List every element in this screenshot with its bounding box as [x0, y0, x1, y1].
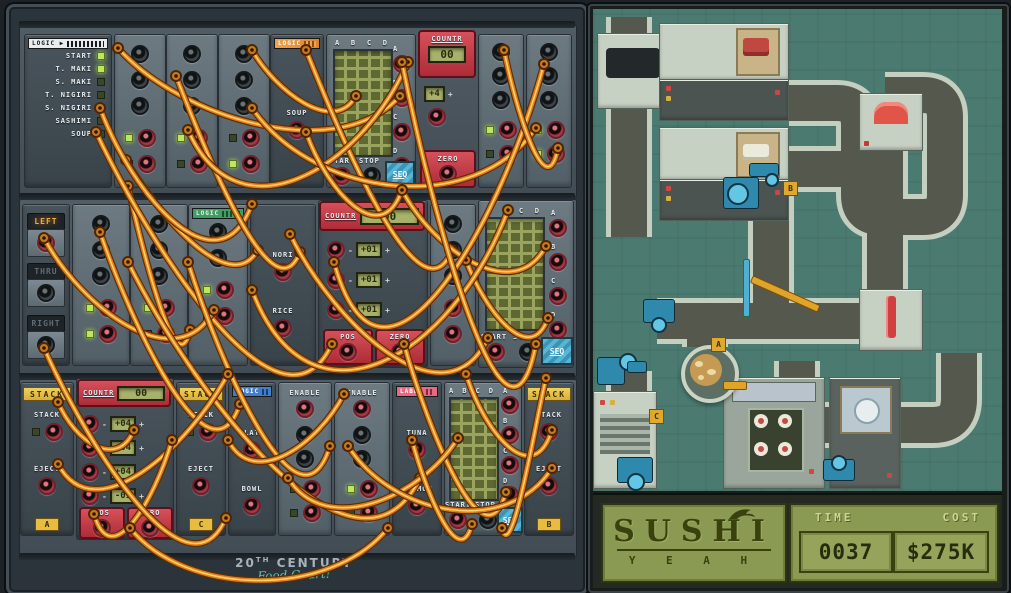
- thru-button[interactable]: THRU: [27, 263, 65, 280]
- plus-button[interactable]: +: [385, 246, 390, 255]
- audio-jack[interactable]: [235, 97, 253, 115]
- audio-jack[interactable]: [138, 155, 156, 173]
- meters-display: TIME COST 0037 $275K: [789, 503, 999, 583]
- audio-jack[interactable]: [150, 241, 168, 259]
- jack-led: [347, 509, 355, 517]
- counter-jack[interactable]: [327, 301, 345, 319]
- seq-logo: SEQ: [497, 507, 523, 533]
- jack-strip-module: [130, 204, 188, 366]
- seq-start-jack[interactable]: [487, 343, 505, 361]
- audio-jack[interactable]: [209, 223, 227, 241]
- audio-jack[interactable]: [492, 91, 510, 109]
- brand-strip-label: LOGIC: [196, 210, 219, 217]
- seq-grid-display[interactable]: [449, 397, 499, 501]
- stack-module-a: STACK STACK EJECT A: [20, 382, 74, 536]
- step-value-display: +04: [110, 416, 136, 432]
- enable-module: ENABLE: [334, 382, 390, 536]
- jack-strip-module: [72, 204, 130, 366]
- order-label: T. NIGIRI: [45, 91, 92, 99]
- audio-jack[interactable]: [499, 121, 517, 139]
- counter-step-row: +4 +: [424, 86, 453, 102]
- left-button[interactable]: LEFT: [27, 213, 65, 230]
- minus-button[interactable]: -: [102, 420, 107, 429]
- diverter-lever-blue[interactable]: [743, 259, 750, 317]
- left-jack[interactable]: [37, 234, 55, 252]
- counter-value-display: 00: [117, 386, 165, 401]
- plus-button[interactable]: +: [139, 420, 144, 429]
- audio-jack[interactable]: [540, 43, 558, 61]
- audio-jack[interactable]: [360, 504, 378, 522]
- seq-start-jack[interactable]: [449, 511, 467, 529]
- step-value-display: +04: [110, 440, 136, 456]
- plus-button[interactable]: +: [139, 468, 144, 477]
- jack-strip-module: [218, 34, 270, 188]
- plate-label: PLATE: [229, 429, 275, 437]
- audio-jack[interactable]: [99, 299, 117, 317]
- direction-module: LEFT THRU RIGHT: [22, 204, 70, 366]
- factory-panel: A B C SUSHI Y E A H TIME COST 0037 $275K: [588, 4, 1009, 593]
- jack-led: [290, 509, 298, 517]
- seq-column-headers: ABCD: [335, 39, 387, 47]
- jack-led: [86, 304, 94, 312]
- brand-footer: 20TH CENTURY Food Court!: [16, 556, 572, 582]
- seq-out-label: A: [393, 45, 398, 53]
- seq-out-label: C: [393, 113, 398, 121]
- seq-stop-jack[interactable]: [479, 511, 497, 529]
- right-jack[interactable]: [37, 336, 55, 354]
- jack-led: [486, 126, 494, 134]
- stack-jack[interactable]: [199, 423, 217, 441]
- counter-jack[interactable]: [81, 439, 99, 457]
- counter-title: COUNTR: [420, 35, 474, 43]
- robot-arm: [609, 453, 661, 491]
- audio-jack[interactable]: [157, 299, 175, 317]
- stack-label: STACK: [177, 411, 225, 419]
- audio-jack[interactable]: [444, 267, 462, 285]
- soup-pot-machine: [681, 345, 739, 403]
- step-value-display: +4: [424, 86, 445, 102]
- counter-module-top: COUNTR 00: [418, 30, 476, 78]
- sushi-piece: [754, 442, 768, 456]
- audio-jack[interactable]: [499, 145, 517, 163]
- seq-out-label: C: [551, 277, 556, 285]
- tuna-dispenser-machine: [659, 23, 789, 81]
- robot-arm: [819, 453, 859, 487]
- audio-jack[interactable]: [303, 480, 321, 498]
- audio-jack[interactable]: [353, 426, 371, 444]
- audio-jack[interactable]: [150, 215, 168, 233]
- stack-jack[interactable]: [540, 423, 558, 441]
- counter-module-mid: COUNTR 00 - +01 + - +01 + - +01 + POS ZE…: [318, 200, 428, 368]
- seq-column-headers: ABCD: [487, 207, 539, 215]
- counter-value-display: 00: [428, 46, 466, 63]
- jack-led: [534, 126, 542, 134]
- sequencer-module: ABCD A B C D START STOP SEQ: [326, 34, 416, 188]
- audio-jack[interactable]: [296, 450, 314, 468]
- jack-strip-module: [114, 34, 166, 188]
- stack-badge-b: B: [537, 518, 561, 531]
- audio-jack[interactable]: [190, 155, 208, 173]
- audio-jack[interactable]: [131, 45, 149, 63]
- audio-jack[interactable]: [296, 426, 314, 444]
- game-screen: LOGIC ▶ START T. MAKI S. MAKI T. NIGIRI …: [0, 0, 1011, 593]
- seq-start-jack[interactable]: [333, 167, 351, 185]
- audio-jack[interactable]: [138, 129, 156, 147]
- seq-out-label: D: [551, 311, 556, 319]
- time-label: TIME: [815, 511, 854, 524]
- counter-module-bottom: COUNTR 00 - +04 + - +04 + - +04 + - -01 …: [76, 378, 174, 540]
- jack-led: [177, 160, 185, 168]
- rice-jack[interactable]: [274, 319, 292, 337]
- stack-module-c: STACK STACK EJECT C: [176, 382, 226, 536]
- sushi-piece: [778, 442, 792, 456]
- step-value-display: +04: [110, 464, 136, 480]
- tuna-jack[interactable]: [408, 441, 426, 459]
- time-value: 0037: [799, 531, 893, 573]
- jack-led: [347, 485, 355, 493]
- audio-jack[interactable]: [92, 215, 110, 233]
- plus-button[interactable]: +: [139, 444, 144, 453]
- audio-jack[interactable]: [235, 71, 253, 89]
- seq-out-jack-a[interactable]: [549, 219, 567, 237]
- eject-label: EJECT: [177, 465, 225, 473]
- bowl-label: BOWL: [229, 485, 275, 493]
- step-value-display: +01: [356, 242, 382, 258]
- zero-jack[interactable]: [391, 343, 409, 361]
- seq-out-label: C: [503, 447, 508, 455]
- zero-jack[interactable]: [439, 165, 457, 183]
- minus-button[interactable]: -: [102, 492, 107, 501]
- seq-out-label: D: [393, 147, 398, 155]
- station-badge-a: A: [711, 337, 726, 352]
- audio-jack[interactable]: [444, 215, 462, 233]
- sequencer-module: ABCD A B C D START STOP SEQ: [444, 382, 522, 536]
- stack-header: STACK: [23, 387, 71, 401]
- enable-jack[interactable]: [353, 400, 371, 418]
- audio-jack[interactable]: [209, 249, 227, 267]
- right-button[interactable]: RIGHT: [27, 315, 65, 332]
- audio-jack[interactable]: [183, 45, 201, 63]
- audio-jack[interactable]: [353, 450, 371, 468]
- ingredient-module-fish: LABEL TUNA SALMON: [392, 382, 442, 536]
- counter-title: COUNTR: [325, 212, 356, 220]
- level-title: SUSHI: [603, 517, 785, 547]
- jack-led: [229, 134, 237, 142]
- sushi-piece: [754, 414, 768, 428]
- pos-button[interactable]: POS: [79, 507, 125, 539]
- nori-label: NORI: [251, 251, 315, 259]
- order-label-start: START: [66, 52, 92, 60]
- station-badge-c: C: [649, 409, 664, 424]
- seq-stop-label: STOP: [513, 333, 534, 341]
- minus-button[interactable]: -: [348, 246, 353, 255]
- soup-jack-label: SOUP: [271, 109, 323, 117]
- jack-led: [177, 134, 185, 142]
- eject-jack[interactable]: [192, 477, 210, 495]
- step-value-display: +01: [356, 302, 382, 318]
- bowl-jack[interactable]: [243, 497, 261, 515]
- status-panel: SUSHI Y E A H TIME COST 0037 $275K: [593, 493, 1002, 588]
- dispenser-module-plate-bowl: LOGIC PLATE BOWL: [228, 382, 276, 536]
- jack-led: [144, 330, 152, 338]
- level-subtitle: Y E A H: [617, 549, 771, 567]
- stack-led: [32, 428, 40, 436]
- audio-jack[interactable]: [444, 325, 462, 343]
- audio-jack[interactable]: [444, 241, 462, 259]
- jack-led: [86, 330, 94, 338]
- sushi-piece: [778, 414, 792, 428]
- audio-jack[interactable]: [92, 267, 110, 285]
- jack-strip-module: [166, 34, 218, 188]
- eject-label: EJECT: [525, 465, 573, 473]
- audio-jack[interactable]: [216, 281, 234, 299]
- audio-jack[interactable]: [99, 325, 117, 343]
- zero-button[interactable]: ZERO: [127, 507, 173, 539]
- counter-jack[interactable]: [81, 463, 99, 481]
- minus-button[interactable]: -: [348, 306, 353, 315]
- cost-label: COST: [943, 511, 982, 524]
- jack-led: [229, 160, 237, 168]
- counter-header: COUNTR 00: [77, 379, 171, 407]
- tuna-label: TUNA: [393, 429, 441, 437]
- robot-arm: [723, 159, 779, 215]
- audio-jack[interactable]: [92, 241, 110, 259]
- salmon-jack[interactable]: [408, 497, 426, 515]
- audio-jack[interactable]: [242, 129, 260, 147]
- seq-logo: SEQ: [385, 161, 415, 187]
- jack-led: [203, 312, 211, 320]
- enable-label: ENABLE: [335, 389, 389, 397]
- counter-value-display: 00: [360, 208, 419, 225]
- plate-jack[interactable]: [243, 441, 261, 459]
- pos-jack[interactable]: [339, 343, 357, 361]
- brand-strip-label: LABEL: [400, 388, 423, 395]
- seq-grid-display[interactable]: [485, 217, 545, 331]
- plus-button[interactable]: +: [448, 90, 453, 99]
- stack-header: STACK: [527, 387, 571, 401]
- cost-value: $275K: [893, 531, 989, 573]
- order-label: S. NIGIRI: [45, 104, 92, 112]
- audio-jack[interactable]: [547, 145, 565, 163]
- audio-jack[interactable]: [242, 155, 260, 173]
- stack-label: STACK: [21, 411, 73, 419]
- seq-out-jack-a[interactable]: [393, 55, 411, 73]
- audio-jack[interactable]: [183, 71, 201, 89]
- pos-jack[interactable]: [93, 519, 111, 537]
- eject-jack[interactable]: [38, 477, 56, 495]
- sushi-tray: [748, 408, 804, 472]
- audio-jack[interactable]: [216, 307, 234, 325]
- counter-jack[interactable]: [327, 241, 345, 259]
- seq-out-jack-c[interactable]: [393, 123, 411, 141]
- jack-strip-module: [478, 34, 524, 188]
- stack-jack[interactable]: [45, 423, 63, 441]
- robot-arm: [637, 295, 681, 335]
- seq-out-jack-b[interactable]: [393, 89, 411, 107]
- seq-stop-label: STOP: [359, 157, 380, 165]
- stack-badge-a: A: [35, 518, 59, 531]
- zero-jack[interactable]: [141, 519, 159, 537]
- minus-button[interactable]: -: [102, 468, 107, 477]
- zero-button[interactable]: ZERO: [375, 329, 425, 365]
- jack-led: [486, 150, 494, 158]
- jack-led: [534, 150, 542, 158]
- audio-jack[interactable]: [157, 325, 175, 343]
- jack-strip-module: [430, 204, 476, 366]
- stack-badge-c: C: [189, 518, 213, 531]
- stack-label: STACK: [525, 411, 573, 419]
- order-led: [97, 104, 105, 112]
- dolphin-icon: [727, 507, 757, 521]
- seq-out-label: D: [503, 477, 508, 485]
- jack-led: [125, 134, 133, 142]
- minus-button[interactable]: -: [348, 276, 353, 285]
- seq-out-label: A: [503, 387, 508, 395]
- jack-strip-module: [526, 34, 572, 188]
- machine-control-face: [659, 79, 789, 121]
- thru-jack[interactable]: [37, 284, 55, 302]
- jack-led: [203, 286, 211, 294]
- seq-out-jack-c[interactable]: [549, 287, 567, 305]
- seq-out-label: B: [393, 79, 398, 87]
- ingredient-module-nori-rice: NORI RICE: [250, 204, 316, 366]
- order-label: SASHIMI: [55, 117, 92, 125]
- seq-grid-display[interactable]: [333, 49, 393, 157]
- rice-label: RICE: [251, 307, 315, 315]
- eject-jack[interactable]: [540, 477, 558, 495]
- audio-jack[interactable]: [183, 97, 201, 115]
- stack-led: [186, 428, 194, 436]
- plus-button[interactable]: +: [139, 492, 144, 501]
- seq-out-jack-b[interactable]: [501, 426, 519, 444]
- order-led: [97, 130, 105, 138]
- audio-jack[interactable]: [131, 97, 149, 115]
- seq-stop-label: STOP: [475, 501, 496, 509]
- nori-jack[interactable]: [274, 263, 292, 281]
- seq-column-headers: ABCD: [449, 387, 493, 395]
- audio-jack[interactable]: [303, 504, 321, 522]
- counter-jack[interactable]: [81, 487, 99, 505]
- order-label: S. MAKI: [55, 78, 92, 86]
- counter-jack[interactable]: [428, 108, 446, 126]
- minus-button[interactable]: -: [102, 444, 107, 453]
- audio-jack[interactable]: [444, 299, 462, 317]
- robot-arm: [595, 345, 647, 389]
- seq-logo: SEQ: [541, 337, 573, 365]
- audio-jack[interactable]: [540, 91, 558, 109]
- plus-button[interactable]: +: [385, 306, 390, 315]
- order-led: [97, 65, 105, 73]
- audio-jack[interactable]: [547, 121, 565, 139]
- audio-jack[interactable]: [492, 67, 510, 85]
- seq-out-jack-c[interactable]: [501, 456, 519, 474]
- jack-led: [290, 485, 298, 493]
- seq-stop-jack[interactable]: [519, 343, 537, 361]
- seq-out-jack-a[interactable]: [501, 396, 519, 414]
- jack-strip-module: LOGIC: [188, 204, 248, 366]
- factory-floor: A B C: [593, 9, 1002, 491]
- enable-jack[interactable]: [296, 400, 314, 418]
- seq-stop-jack[interactable]: [363, 167, 381, 185]
- audio-jack[interactable]: [492, 43, 510, 61]
- seq-start-label: START: [481, 333, 507, 341]
- stack-module-b: STACK STACK EJECT B: [524, 382, 574, 536]
- enable-label: ENABLE: [279, 389, 331, 397]
- jack-led: [144, 304, 152, 312]
- soup-jack[interactable]: [288, 121, 306, 139]
- audio-jack[interactable]: [360, 480, 378, 498]
- soup-output-module: LOGIC SOUP: [270, 34, 324, 188]
- level-title-display: SUSHI Y E A H: [601, 503, 787, 583]
- enable-module: ENABLE: [278, 382, 332, 536]
- salmon-label: SALMON: [393, 485, 441, 493]
- audio-jack[interactable]: [190, 129, 208, 147]
- plus-button[interactable]: +: [385, 276, 390, 285]
- fish-slicer-machine: [859, 289, 923, 351]
- soup-pot-pipe: [723, 381, 747, 390]
- stack-header: STACK: [179, 387, 223, 401]
- order-led: [97, 52, 105, 60]
- seq-start-label: START: [445, 501, 471, 509]
- brand-strip-label: LOGIC: [236, 388, 259, 395]
- seq-out-label: B: [503, 417, 508, 425]
- logic-module-orders: LOGIC ▶ START T. MAKI S. MAKI T. NIGIRI …: [24, 34, 112, 188]
- salmon-slicer-machine: [859, 93, 923, 151]
- counter-title: COUNTR: [83, 389, 114, 397]
- audio-jack[interactable]: [235, 45, 253, 63]
- counter-jack[interactable]: [81, 415, 99, 433]
- brand-strip-label: LOGIC ▶: [32, 40, 64, 47]
- seq-out-jack-d[interactable]: [501, 486, 519, 504]
- sushi-output-console: [723, 377, 825, 489]
- step-value-display: -01: [110, 488, 136, 504]
- counter-header: COUNTR 00: [319, 201, 425, 231]
- jack-led: [125, 160, 133, 168]
- order-label: T. MAKI: [55, 65, 92, 73]
- pos-button[interactable]: POS: [323, 329, 373, 365]
- seq-out-jack-b[interactable]: [549, 253, 567, 271]
- sequencer-module: ABCD A B C D START STOP SEQ: [478, 200, 574, 368]
- audio-jack[interactable]: [131, 71, 149, 89]
- brand-strip-label: LOGIC: [278, 40, 301, 47]
- order-label: SOUP: [71, 130, 92, 138]
- seq-out-label: B: [551, 243, 556, 251]
- audio-jack[interactable]: [540, 67, 558, 85]
- order-led: [97, 78, 105, 86]
- zero-button[interactable]: ZERO: [420, 150, 476, 188]
- step-value-display: +01: [356, 272, 382, 288]
- seq-out-label: A: [551, 209, 556, 217]
- station-badge-b: B: [783, 181, 798, 196]
- order-led: [97, 117, 105, 125]
- order-led: [97, 91, 105, 99]
- eject-label: EJECT: [21, 465, 73, 473]
- counter-jack[interactable]: [327, 271, 345, 289]
- seq-start-label: START: [329, 157, 355, 165]
- audio-jack[interactable]: [150, 267, 168, 285]
